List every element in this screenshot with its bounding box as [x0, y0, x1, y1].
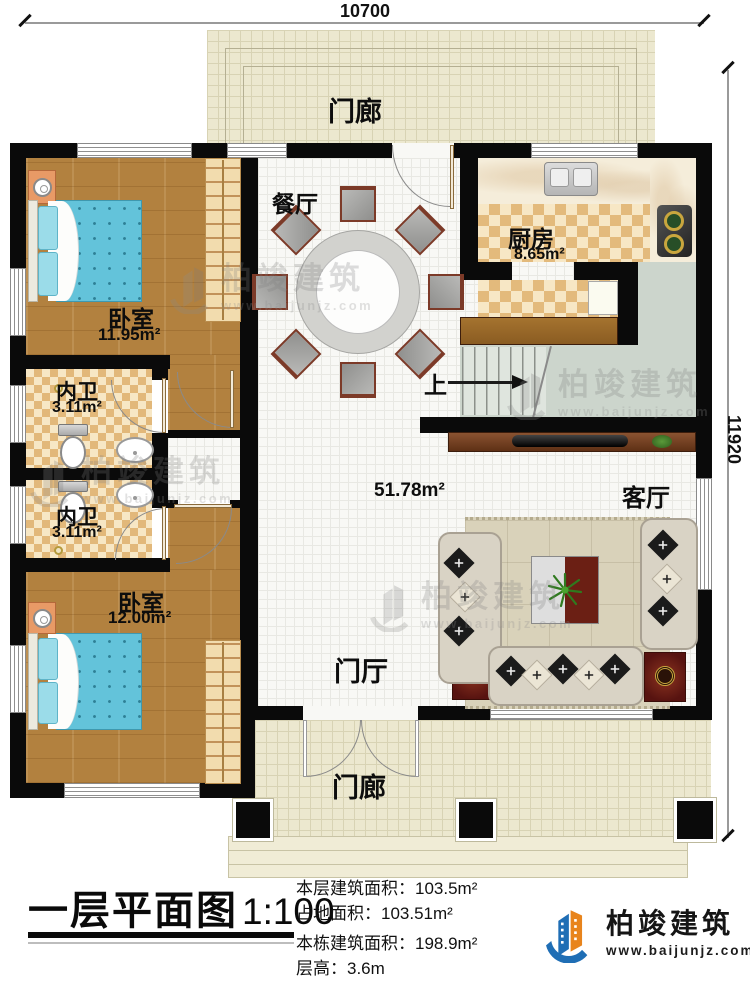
bath1-area-label: 3.11m²	[52, 399, 102, 417]
brand-name: 柏竣建筑	[606, 910, 750, 938]
stairs-arrow-head	[512, 375, 528, 389]
info-footprint: 占地面积：103.51m²	[296, 901, 477, 926]
wall-pantry-divider	[618, 262, 638, 345]
stairs-arrow-line	[448, 381, 514, 384]
toilet	[58, 424, 88, 436]
lamp-icon	[33, 178, 52, 197]
window	[64, 783, 200, 798]
door-opening	[303, 706, 418, 720]
pantry-shelf	[460, 317, 618, 345]
bedroom2-area-label: 12.00m²	[108, 608, 171, 628]
porch-top-frame	[243, 66, 619, 143]
stove-burner	[664, 234, 684, 254]
title-underline-thin	[28, 942, 294, 944]
window	[10, 645, 26, 713]
bed-pillow	[38, 252, 58, 296]
window	[227, 143, 287, 158]
porch-column	[674, 798, 716, 842]
hall-left-floor	[168, 437, 240, 500]
bed-pillow	[38, 206, 58, 250]
dimension-line-top	[25, 22, 704, 24]
foyer-label: 门厅	[334, 650, 388, 689]
plant-icon	[545, 570, 585, 610]
door-leaf	[415, 720, 419, 777]
bed-pillow	[38, 682, 58, 724]
window	[531, 143, 638, 158]
porch-top-label: 门廊	[328, 90, 382, 129]
title-underline	[28, 932, 294, 938]
stair-landing	[638, 262, 696, 417]
door-leaf	[162, 506, 166, 560]
speaker-icon	[655, 666, 675, 686]
porch-column	[456, 799, 496, 841]
bed-pillow	[38, 638, 58, 680]
brand-url: www.baijunjz.com	[606, 943, 750, 958]
wall-hall-left-top	[168, 430, 258, 438]
wall-bedrooms-right	[240, 143, 258, 798]
floor-drain	[54, 546, 63, 555]
wall-hall-left-bottom	[230, 500, 258, 508]
wall-tv	[420, 417, 712, 433]
wall-kitchen-bottom	[574, 262, 618, 280]
window	[696, 478, 712, 590]
brand-logo: 柏竣建筑 www.baijunjz.com	[540, 905, 750, 963]
toilet	[60, 436, 86, 469]
door-leaf	[230, 370, 234, 428]
dimension-tick	[697, 14, 710, 27]
porch-column	[233, 799, 273, 841]
kitchen-area-label: 8.65m²	[514, 246, 565, 264]
window	[10, 385, 26, 443]
dining-chair	[428, 274, 464, 310]
wardrobe-pole	[222, 160, 224, 320]
window	[10, 268, 26, 336]
door-leaf	[303, 720, 307, 777]
wall-kitchen-left	[460, 143, 478, 262]
dimension-tick	[18, 14, 31, 27]
window	[77, 143, 192, 158]
stove-burner	[664, 211, 684, 231]
dining-chair	[340, 186, 376, 222]
dining-label: 餐厅	[272, 185, 318, 219]
lamp-icon	[33, 609, 52, 628]
porch-steps	[228, 836, 688, 878]
kitchen-sink-basin	[550, 168, 569, 187]
plant-decor	[652, 435, 672, 448]
wall-bedroom1-bottom	[10, 355, 170, 369]
window	[10, 486, 26, 544]
info-floor-area: 本层建筑面积：103.5m²	[296, 876, 477, 901]
kitchen-sink-basin	[573, 168, 592, 187]
door-leaf	[162, 378, 166, 433]
door-leaf	[450, 145, 454, 209]
bed-headboard	[28, 200, 38, 302]
dimension-height-label: 11920	[723, 415, 744, 464]
hall-area-label: 51.78m²	[374, 480, 445, 502]
door-leaf	[174, 504, 232, 508]
floor-plan-canvas: 10700 11920 门廊 上	[0, 0, 750, 983]
bedroom1-area-label: 11.95m²	[98, 325, 160, 345]
dining-chair	[252, 274, 288, 310]
porch-bottom-label: 门廊	[332, 766, 386, 805]
wall-bath-divider	[10, 468, 168, 480]
bath2-area-label: 3.11m²	[52, 524, 102, 542]
dining-chair	[340, 362, 376, 398]
wardrobe-pole	[222, 642, 224, 782]
info-floor-height: 层高：3.6m	[296, 956, 477, 981]
fridge	[588, 281, 618, 315]
wall-bedroom2-top	[10, 558, 170, 572]
sink	[116, 482, 154, 508]
dimension-width-label: 10700	[340, 1, 390, 22]
dining-table-top	[316, 250, 400, 334]
brand-logo-icon	[540, 905, 596, 963]
plan-title: 一层平面图 1:100	[28, 878, 335, 936]
building-info: 本层建筑面积：103.5m² 占地面积：103.51m² 本栋建筑面积：198.…	[296, 876, 477, 981]
tv	[512, 435, 628, 447]
living-label: 客厅	[622, 478, 670, 513]
bed-headboard	[28, 633, 38, 730]
wall-kitchen-bottom	[460, 262, 512, 280]
plan-title-text: 一层平面图	[28, 878, 238, 936]
sink	[116, 437, 154, 463]
toilet	[58, 481, 88, 492]
info-total-area: 本栋建筑面积：198.9m²	[296, 931, 477, 956]
